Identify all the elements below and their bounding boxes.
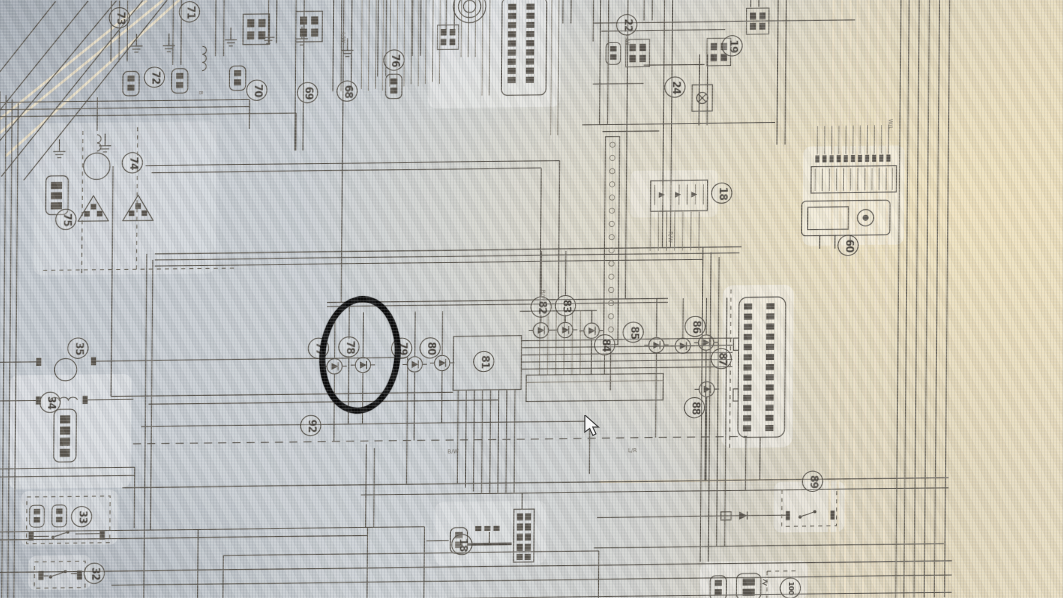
- wiring-diagram: [0, 0, 1063, 598]
- wire-label: W/L: [887, 119, 893, 130]
- wire-label: L/W: [339, 32, 345, 43]
- mouse-cursor: [583, 415, 601, 441]
- diode-symbol: [671, 338, 695, 354]
- diode-symbol: [553, 322, 577, 338]
- wire-label: L/R: [628, 448, 637, 454]
- lamp-symbol: [692, 85, 713, 112]
- component-ref-100: 100: [780, 577, 801, 598]
- paper-glow-patches: [8, 0, 906, 598]
- diode-symbol: [402, 357, 426, 373]
- diagram-skew-wrapper: 7371727069687622192418607475353433327778…: [0, 0, 1063, 598]
- diode-symbol: [694, 335, 718, 351]
- diode-symbol: [529, 323, 553, 339]
- photographed-screen: 7371727069687622192418607475353433327778…: [0, 0, 1063, 598]
- wire-label: B: [197, 91, 203, 95]
- diode-symbol: [695, 381, 719, 397]
- wire-label: L/W: [624, 35, 630, 46]
- wire-label: B/W: [447, 449, 458, 455]
- pin-strip-left: [604, 137, 620, 345]
- wire-label: R/W: [666, 231, 672, 242]
- diode-symbol: [644, 337, 668, 353]
